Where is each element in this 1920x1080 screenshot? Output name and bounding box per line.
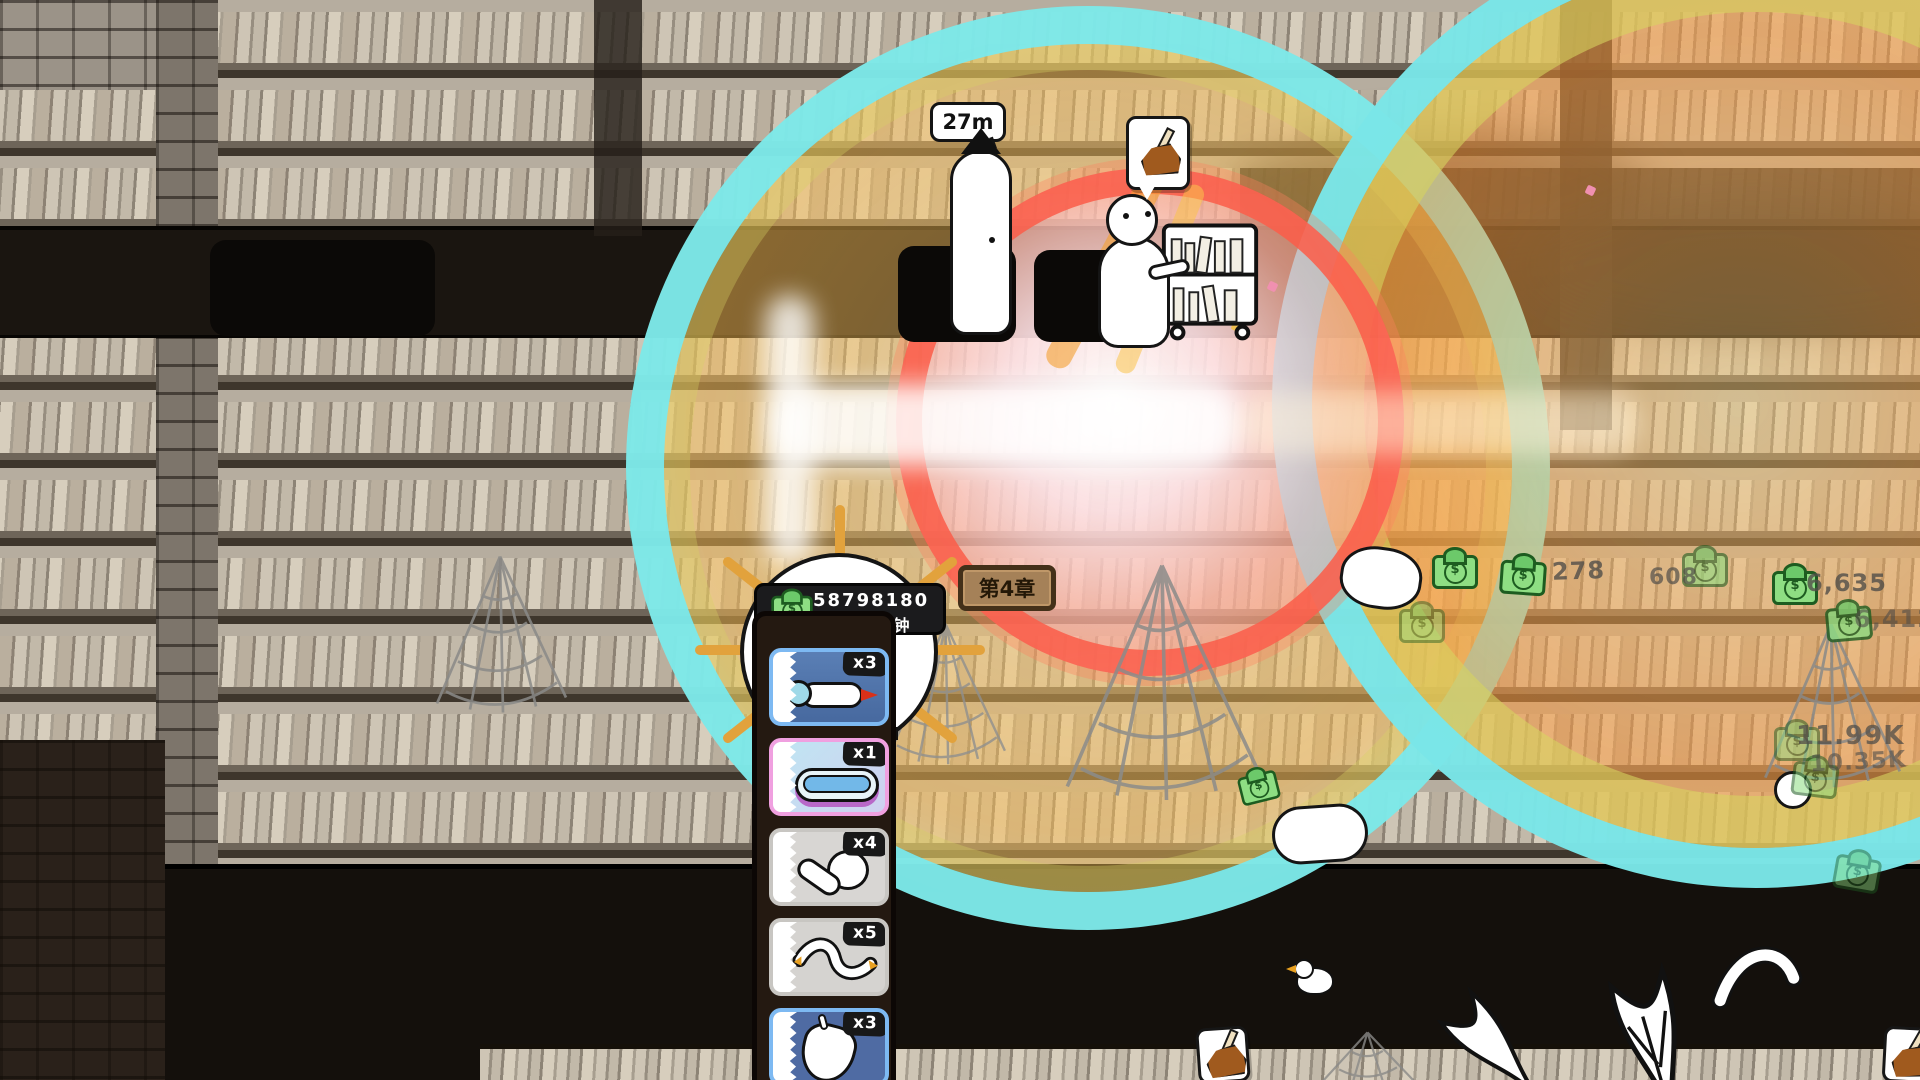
floating-number: 608 bbox=[1649, 565, 1698, 590]
card-count: x5 bbox=[843, 919, 889, 947]
light-beam-horizontal bbox=[772, 384, 1242, 466]
broom-icon bbox=[1136, 130, 1179, 177]
card-count: x4 bbox=[843, 829, 889, 857]
broom-icon bbox=[1200, 1031, 1246, 1080]
light-beam-right bbox=[1240, 392, 1640, 454]
librarian-goose-body bbox=[1098, 236, 1170, 348]
timer-bubble: 27m bbox=[930, 102, 1006, 142]
money-creature[interactable] bbox=[1432, 555, 1478, 589]
currency-total: 58798180 bbox=[813, 590, 929, 611]
floating-number: 10.35K bbox=[1809, 746, 1907, 777]
lounging-goose bbox=[1270, 802, 1370, 867]
wheel-face: ? 278 608 6,635 bbox=[740, 553, 938, 751]
floating-number: 278 bbox=[1552, 556, 1606, 586]
floating-number: 6,412 bbox=[1854, 605, 1920, 633]
broom-task-bubble bbox=[1126, 116, 1190, 190]
sidebar-card-diving-goose[interactable]: x3 bbox=[769, 1008, 889, 1080]
chapter-label: 第4章 bbox=[979, 573, 1036, 603]
wizard-goose bbox=[950, 150, 1012, 335]
sidebar-card-pool[interactable]: x1 bbox=[769, 738, 889, 816]
money-creature[interactable] bbox=[1499, 559, 1547, 596]
item-sidebar: x3 x1 x4 x5 bbox=[752, 611, 896, 1080]
spider-web bbox=[425, 545, 575, 715]
game-viewport: 27m ? bbox=[0, 0, 1920, 1080]
librarian-goose-head bbox=[1106, 194, 1158, 246]
bookcase-divider-left bbox=[594, 0, 642, 236]
chapter-sign: 第4章 bbox=[958, 565, 1056, 611]
card-count: x1 bbox=[843, 739, 889, 767]
duck bbox=[1296, 967, 1334, 995]
broom-sign bbox=[1195, 1025, 1251, 1080]
spider-web bbox=[1048, 552, 1276, 800]
brick-wall-bottomleft bbox=[0, 740, 165, 1080]
spider-web bbox=[1305, 1028, 1430, 1080]
broom-icon bbox=[1888, 1032, 1920, 1077]
sidebar-card-twisted-geese[interactable]: x5 bbox=[769, 918, 889, 996]
money-creature[interactable] bbox=[1399, 609, 1445, 643]
timer-label: 27m bbox=[942, 110, 993, 134]
black-bench-left bbox=[210, 240, 435, 336]
broom-sign bbox=[1882, 1026, 1920, 1080]
sidebar-card-bowing-goose[interactable]: x4 bbox=[769, 828, 889, 906]
card-count: x3 bbox=[843, 649, 889, 677]
book-cart bbox=[1156, 216, 1264, 342]
card-count: x3 bbox=[843, 1009, 889, 1037]
floating-number: 6,635 bbox=[1806, 569, 1887, 597]
sidebar-card-caterpillar[interactable]: x3 bbox=[769, 648, 889, 726]
curvy-goose-neck bbox=[1710, 927, 1812, 1019]
